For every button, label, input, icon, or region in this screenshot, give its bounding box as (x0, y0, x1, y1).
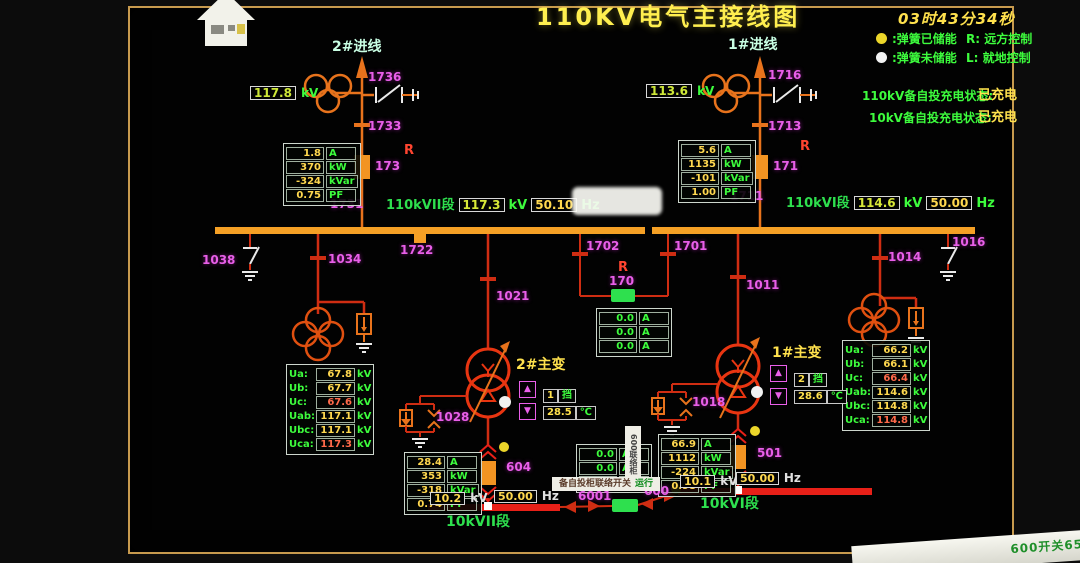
incomer2-kv-value: 117.8 (250, 86, 296, 100)
phase-value: 114.8 (872, 400, 911, 413)
phase-label: Ubc: (289, 425, 316, 436)
phase-label: Ubc: (845, 401, 872, 412)
voltage-row: Ubc:114.8kV (845, 400, 927, 413)
meas-unit: PF (721, 186, 751, 199)
voltage-row: Uc:66.4kV (845, 372, 927, 385)
tx2-name: 2#主变 (516, 358, 565, 372)
home-icon[interactable] (197, 0, 255, 46)
meas-value: 5.6 (681, 144, 719, 157)
meas-unit: A (639, 326, 669, 339)
meas-value: 66.9 (661, 438, 699, 451)
meas-row: 0.0A (599, 326, 669, 339)
single-line-diagram (0, 0, 1080, 563)
phase-value: 117.1 (316, 410, 355, 423)
phase-value: 117.3 (316, 438, 355, 451)
meas-unit: A (326, 147, 356, 160)
phase-label: Ua: (845, 345, 872, 356)
meas-value: -101 (681, 172, 719, 185)
disconnector-label-1701: 1701 (674, 240, 707, 252)
meas-unit: A (447, 456, 477, 469)
transformer-2-icon (467, 341, 510, 422)
disconnector-label-1713: 1713 (768, 120, 801, 132)
earth-switch-1038-icon[interactable] (242, 234, 259, 280)
bus-hz-value: 50.00 (926, 196, 972, 210)
bus1-voltage-box: Ua:66.2kV Ub:66.1kV Uc:66.4kV Uab:114.6k… (842, 340, 930, 431)
disconnector-label-6001: 6001 (578, 490, 611, 502)
tie110-remote-flag: R (618, 261, 628, 274)
disconnector-label-1702: 1702 (586, 240, 619, 252)
disconnector-1014-icon[interactable] (872, 256, 888, 260)
incomer2-kv-unit: kV (301, 86, 318, 100)
bus-hz-unit: Hz (542, 489, 559, 503)
bus-kv-unit: kV (720, 474, 737, 488)
incomer1-remote-flag: R (800, 140, 810, 153)
status-10kv-value: 已充电 (978, 111, 1017, 124)
bus-kv-value: 10.1 (680, 475, 715, 488)
meas-value: 0.0 (579, 462, 617, 475)
bus-joint-label-1722: 1722 (400, 244, 433, 256)
voltage-transformer-2-icon (293, 308, 343, 360)
meas-row: 28.4A (407, 456, 479, 469)
meas-value: 370 (286, 161, 324, 174)
status-110kv-label: 110kV备自投充电状态: (862, 90, 993, 102)
voltage-row: Ua:66.2kV (845, 344, 927, 357)
meas-row: 370kW (286, 161, 358, 174)
meas-row: 1.8A (286, 147, 358, 160)
meas-value: 0.0 (579, 448, 617, 461)
pt-branch-1034 (318, 234, 364, 314)
disconnector-1034-icon[interactable] (310, 256, 326, 260)
phase-unit: kV (913, 415, 927, 426)
voltage-row: Ub:67.7kV (289, 382, 371, 395)
meas-unit: A (701, 438, 731, 451)
scada-screen: 110KV电气主接线图 03时43分34秒 :弹簧已储能 R: 远方控制 :弹簧… (0, 0, 1080, 563)
meas-row: 5.6A (681, 144, 753, 157)
voltage-row: Ubc:117.1kV (289, 424, 371, 437)
breaker-label-170: 170 (609, 275, 634, 287)
phase-label: Ua: (289, 369, 316, 380)
meas-value: -324 (286, 175, 324, 188)
meas-value: 1112 (661, 452, 699, 465)
meas-value: 0.0 (599, 326, 637, 339)
phase-unit: kV (357, 411, 371, 422)
phase-unit: kV (913, 387, 927, 398)
phase-value: 117.1 (316, 424, 355, 437)
meas-row: 1135kW (681, 158, 753, 171)
breaker-604-spring-lamp (499, 442, 509, 452)
bus-kv-unit: kV (509, 199, 528, 212)
phase-label: Uab: (289, 411, 316, 422)
bus-110kv-I-label: 110kVI段 114.6 kV 50.00 Hz (786, 196, 995, 210)
clock: 03时43分34秒 (898, 12, 1015, 27)
tie-cabinet-label: 600联络柜 (625, 426, 641, 482)
tap-unit: 挡 (809, 373, 827, 387)
meas-value: 0.0 (599, 340, 637, 353)
meas-unit: kVar (326, 175, 358, 188)
disconnector-1736-icon[interactable] (362, 85, 418, 103)
surge-arrester-2-icon (356, 314, 372, 352)
phase-value: 66.1 (872, 358, 911, 371)
meas-value: 1.8 (286, 147, 324, 160)
disconnector-label-1011: 1011 (746, 279, 779, 291)
breaker-label-604: 604 (506, 461, 531, 473)
phase-value: 66.2 (872, 344, 911, 357)
tx2-tap-lower-button[interactable]: ▼ (519, 403, 536, 420)
voltage-row: Ua:67.8kV (289, 368, 371, 381)
meas-row: 0.75PF (286, 189, 358, 202)
bus-name: 110kVII段 (386, 199, 455, 212)
phase-label: Uca: (845, 415, 872, 426)
meas-row: 66.9A (661, 438, 733, 451)
bus-10kv-I-freq: 50.00 Hz (736, 469, 801, 485)
phase-value: 114.6 (872, 386, 911, 399)
meas-row: 1.00PF (681, 186, 753, 199)
meas-value: 1135 (681, 158, 719, 171)
status-110kv-value: 已充电 (978, 89, 1017, 102)
legend-spring-uncharged: :弹簧未储能 (892, 52, 957, 64)
phase-label: Ub: (289, 383, 316, 394)
phase-unit: kV (913, 373, 927, 384)
phase-label: Ub: (845, 359, 872, 370)
tx1-tap-raise-button[interactable]: ▲ (770, 365, 787, 382)
meas-row: 0.0A (599, 312, 669, 325)
bus-kv-unit: kV (470, 491, 487, 505)
disconnector-label-1021: 1021 (496, 290, 529, 302)
phase-value: 67.6 (316, 396, 355, 409)
voltage-row: Ub:66.1kV (845, 358, 927, 371)
temp-value: 28.6 (794, 390, 827, 404)
incomer1-voltage: 113.6 kV (646, 82, 714, 98)
phase-unit: kV (357, 439, 371, 450)
bus-kv-value: 117.3 (459, 198, 505, 212)
bus-10kv-II-freq: 50.00 Hz (494, 487, 559, 503)
voltage-row: Uca:117.3kV (289, 438, 371, 451)
tx1-tap-position: 2挡 (794, 369, 827, 387)
disconnector-label-1014: 1014 (888, 251, 921, 263)
tap-value: 2 (794, 373, 809, 387)
bus2-voltage-box: Ua:67.8kV Ub:67.7kV Uc:67.6kV Uab:117.1k… (286, 364, 374, 455)
voltage-transformer-1-icon (849, 294, 899, 346)
tx2-temperature: 28.5℃ (543, 402, 596, 420)
page-title: 110KV电气主接线图 (536, 5, 800, 29)
bus-kv-unit: kV (904, 197, 923, 210)
incomer2-name: 2#进线 (332, 40, 381, 54)
pt-branch-1014 (880, 234, 916, 308)
breaker-label-171: 171 (773, 160, 798, 172)
neutral-arrester-1018-icon (652, 384, 717, 435)
temp-value: 28.5 (543, 406, 576, 420)
breaker-170-icon[interactable] (611, 289, 635, 302)
bus-kv-value: 114.6 (854, 196, 900, 210)
breaker-label-173: 173 (375, 160, 400, 172)
tx2-tap-raise-button[interactable]: ▲ (519, 381, 536, 398)
temp-unit: ℃ (827, 390, 847, 404)
meas-unit: A (639, 340, 669, 353)
bus-110kv-II-label: 110kVII段 117.3 kV 50.10 Hz (386, 198, 600, 212)
phase-label: Uca: (289, 439, 316, 450)
bus-kv-value: 10.2 (430, 492, 465, 505)
arrester-label-1018: 1018 (692, 396, 725, 408)
phase-value: 67.7 (316, 382, 355, 395)
disconnector-label-1034: 1034 (328, 253, 361, 265)
disconnector-1011-icon[interactable] (730, 275, 746, 279)
meas-unit: kW (326, 161, 356, 174)
meas-unit: kVar (721, 172, 753, 185)
earth-switch-label-1016: 1016 (952, 236, 985, 248)
meas-unit: kW (721, 158, 751, 171)
incomer1-name: 1#进线 (728, 38, 777, 52)
tie-info-status: 运行 (635, 479, 653, 489)
phase-label: Uc: (845, 373, 872, 384)
status-10kv-label: 10kV备自投充电状态: (869, 112, 992, 124)
phase-label: Uab: (845, 387, 872, 398)
breaker-label-501: 501 (757, 447, 782, 459)
tap-value: 1 (543, 389, 558, 403)
phase-value: 67.8 (316, 368, 355, 381)
arrester-label-1028: 1028 (436, 411, 469, 423)
tie-info-text: 备自投柜联络开关 (559, 479, 631, 489)
meas-unit: PF (326, 189, 356, 202)
incomer2-voltage: 117.8 kV (250, 84, 318, 100)
tie110-measurements: 0.0A 0.0A 0.0A (596, 308, 672, 357)
phase-unit: kV (357, 369, 371, 380)
meas-row: -324kVar (286, 175, 358, 188)
meas-unit: kW (447, 470, 477, 483)
phase-value: 114.8 (872, 414, 911, 427)
bus-110kv-I (652, 227, 975, 234)
incomer1-kv-value: 113.6 (646, 84, 692, 98)
phase-unit: kV (357, 383, 371, 394)
spring-charged-indicator (876, 33, 887, 44)
meas-value: 353 (407, 470, 445, 483)
phase-unit: kV (357, 397, 371, 408)
meas-row: -101kVar (681, 172, 753, 185)
meas-row: 0.0A (599, 340, 669, 353)
meas-value: 28.4 (407, 456, 445, 469)
phase-unit: kV (913, 345, 927, 356)
tx1-name: 1#主变 (772, 346, 821, 360)
voltage-row: Uab:114.6kV (845, 386, 927, 399)
incomer1-kv-unit: kV (697, 84, 714, 98)
meas-unit: kW (701, 452, 731, 465)
meas-row: 1112kW (661, 452, 733, 465)
bus-hz-unit: Hz (976, 197, 994, 210)
incomer2-measurements: 1.8A 370kW -324kVar 0.75PF (283, 143, 361, 206)
tx1-temperature: 28.6℃ (794, 386, 847, 404)
tx2-tap-position: 1挡 (543, 385, 576, 403)
legend-remote-control: R: 远方控制 (966, 33, 1032, 45)
meas-row: 353kW (407, 470, 479, 483)
incomer2-remote-flag: R (404, 144, 414, 157)
disconnector-1713-icon[interactable] (752, 123, 768, 127)
voltage-row: Uc:67.6kV (289, 396, 371, 409)
bus-10kv-I-name: 10kVI段 (700, 497, 759, 511)
tx1-status-lamp (751, 386, 763, 398)
bus-joint-1722 (414, 234, 426, 243)
tx2-status-lamp (499, 396, 511, 408)
phase-label: Uc: (289, 397, 316, 408)
bus-10kv-I-voltage: 10.1 kV (680, 472, 738, 488)
meas-unit: A (639, 312, 669, 325)
phase-unit: kV (913, 359, 927, 370)
bus-hz-value: 50.00 (494, 490, 537, 503)
voltage-row: Uab:117.1kV (289, 410, 371, 423)
tie-info-box: 备自投柜联络开关运行 (552, 477, 660, 491)
meas-value: 1.00 (681, 186, 719, 199)
disconnector-1716-icon[interactable] (760, 85, 816, 103)
disconnector-1021-icon[interactable] (480, 277, 496, 281)
bus-10kv-II-name: 10kVII段 (446, 515, 510, 529)
bus-hz-unit: Hz (784, 471, 801, 485)
spring-uncharged-indicator (876, 52, 887, 63)
legend-local-control: L: 就地控制 (966, 52, 1031, 64)
tap-unit: 挡 (558, 389, 576, 403)
meas-value: 0.75 (286, 189, 324, 202)
voltage-row: Uca:114.8kV (845, 414, 927, 427)
bus-hz-value: 50.10 (531, 198, 577, 212)
camera-glare (572, 187, 662, 215)
bus-hz-value: 50.00 (736, 472, 779, 485)
phase-unit: kV (913, 401, 927, 412)
legend-spring-charged: :弹簧已储能 (892, 33, 957, 45)
phase-unit: kV (357, 425, 371, 436)
disconnector-label-1736: 1736 (368, 71, 401, 83)
incomer1-measurements: 5.6A 1135kW -101kVar 1.00PF (678, 140, 756, 203)
phase-value: 66.4 (872, 372, 911, 385)
temp-unit: ℃ (576, 406, 596, 420)
bus-10kv-II-voltage: 10.2 kV (430, 489, 488, 505)
tx1-tap-lower-button[interactable]: ▼ (770, 388, 787, 405)
earth-switch-label-1038: 1038 (202, 254, 235, 266)
disconnector-label-1716: 1716 (768, 69, 801, 81)
meas-unit: A (721, 144, 751, 157)
breaker-501-spring-lamp (750, 426, 760, 436)
disconnector-label-1733: 1733 (368, 120, 401, 132)
bus-name: 110kVI段 (786, 197, 850, 210)
breaker-600-icon[interactable] (612, 499, 638, 512)
meas-value: 0.0 (599, 312, 637, 325)
